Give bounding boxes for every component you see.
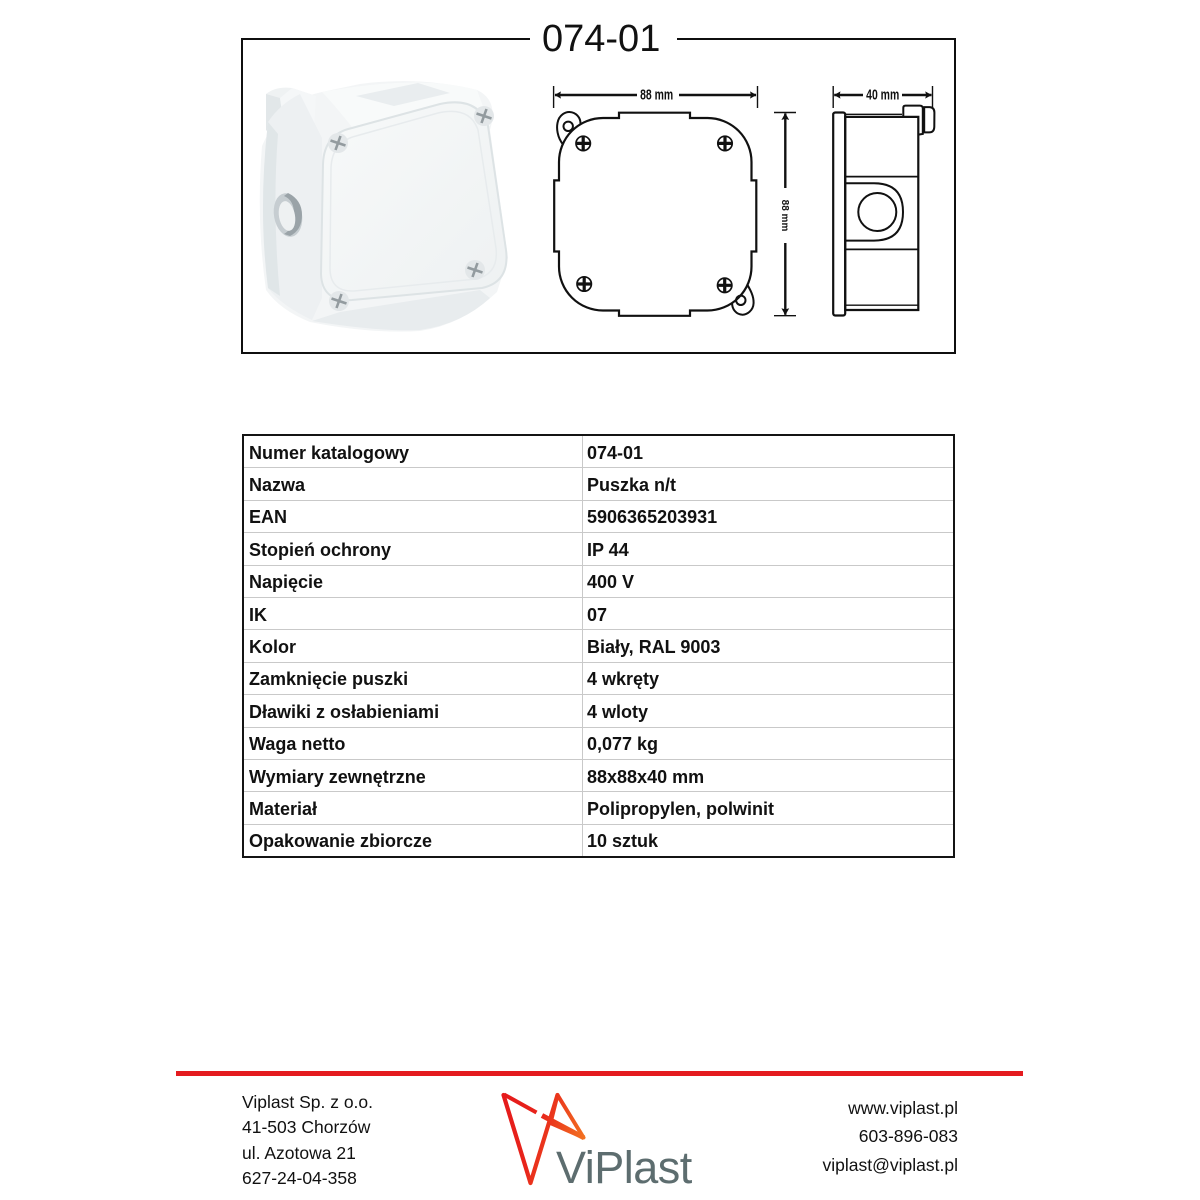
svg-text:88 mm: 88 mm [779,200,790,232]
svg-text:40 mm: 40 mm [866,87,899,103]
svg-text:88 mm: 88 mm [640,87,673,103]
svg-text:ViPlast: ViPlast [556,1142,693,1193]
